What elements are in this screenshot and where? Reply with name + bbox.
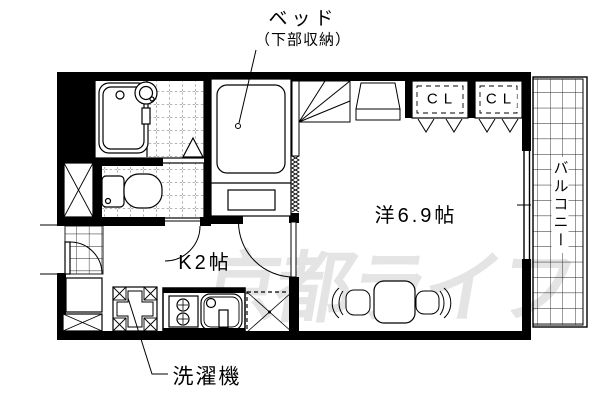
main-room-label: 洋6.9帖 bbox=[375, 206, 458, 226]
storage-x-box-icon bbox=[63, 314, 102, 331]
floor-plan-drawing bbox=[0, 0, 600, 400]
bed-storage-note: （下部収納） bbox=[255, 33, 351, 48]
toilet-icon bbox=[102, 174, 162, 208]
main-room bbox=[299, 81, 451, 323]
kitchen-door-icon bbox=[239, 222, 297, 277]
corner-shelf-icon bbox=[299, 81, 350, 122]
washing-machine-pan-icon bbox=[113, 287, 157, 331]
bed-icon bbox=[211, 79, 291, 216]
kitchen-counter bbox=[163, 288, 245, 333]
chair-icon bbox=[416, 288, 451, 318]
kitchen-label: K2帖 bbox=[178, 253, 231, 273]
accordion-curtain-icon bbox=[292, 156, 299, 212]
balcony-label: バルコニー bbox=[552, 157, 569, 253]
entrance-tile-floor bbox=[65, 226, 103, 274]
sliding-window-icon bbox=[517, 151, 531, 259]
shoe-cabinet-icon bbox=[66, 278, 102, 312]
tv-stand-icon bbox=[356, 83, 400, 120]
refrigerator-space-icon bbox=[247, 292, 292, 332]
floor-plan: 京都ライフ bbox=[0, 0, 600, 400]
storage-x-box-icon bbox=[64, 163, 93, 217]
closet-folding-door-icon bbox=[418, 119, 518, 132]
bed-label: ベッド bbox=[268, 10, 337, 29]
closet-1-label: CL bbox=[422, 91, 458, 108]
kitchen bbox=[113, 222, 296, 333]
dining-table-icon bbox=[374, 281, 415, 323]
washing-machine-label: 洗濯機 bbox=[173, 367, 242, 388]
chair-icon bbox=[332, 288, 370, 318]
closet-2-label: CL bbox=[481, 91, 517, 108]
